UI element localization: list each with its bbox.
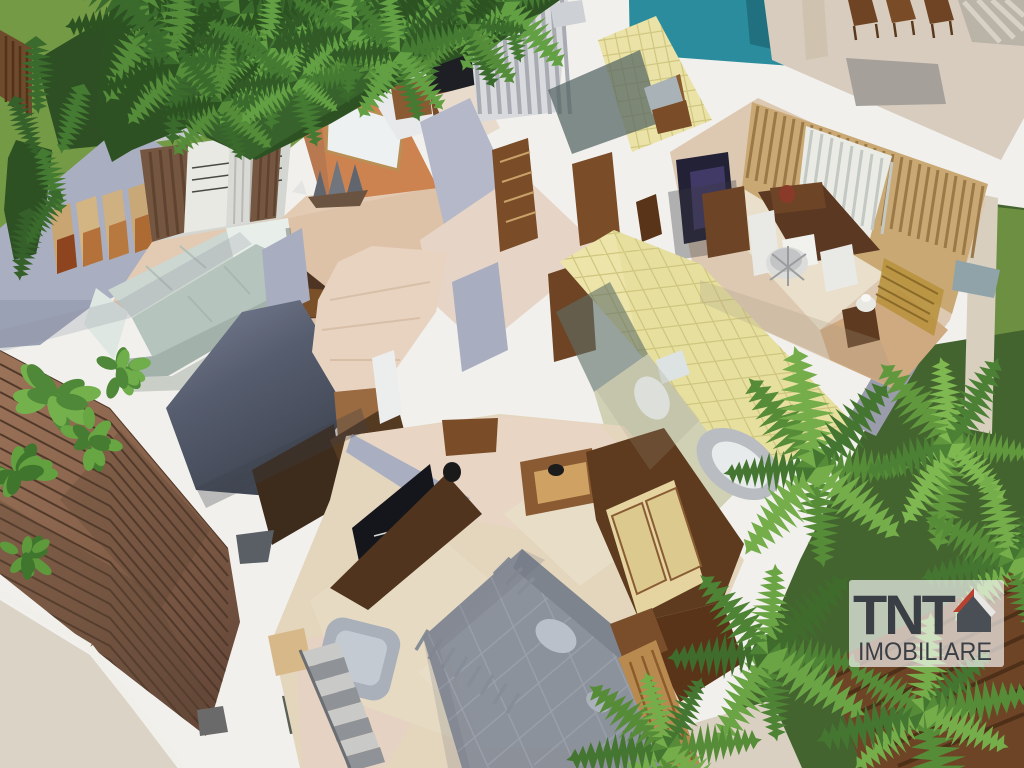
svg-text:TNT: TNT — [853, 583, 956, 646]
svg-text:IMOBILIARE: IMOBILIARE — [858, 638, 992, 666]
